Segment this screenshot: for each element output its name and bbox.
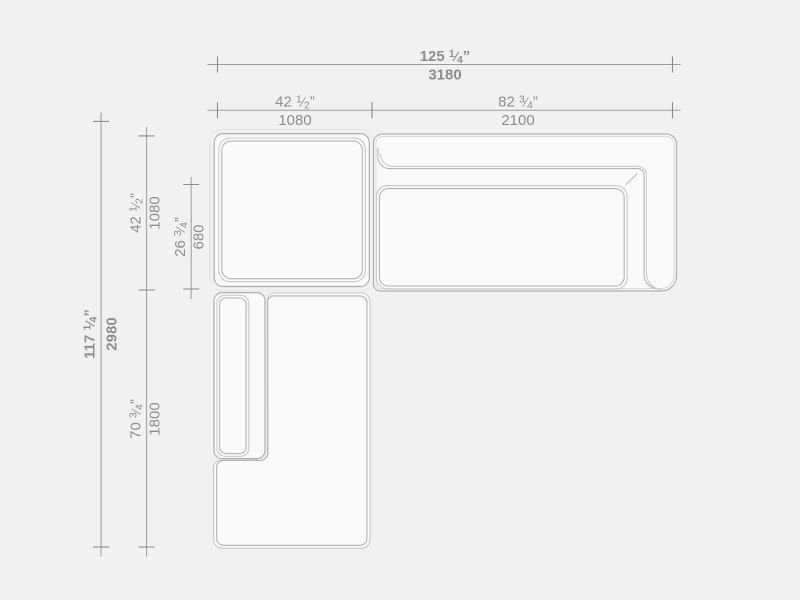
svg-text:2100: 2100 [501,112,534,129]
svg-text:117 1⁄4”: 117 1⁄4” [81,309,99,359]
svg-text:125 1⁄4”: 125 1⁄4” [420,48,471,66]
svg-text:3180: 3180 [428,67,461,84]
svg-text:42 1⁄2”: 42 1⁄2” [127,193,145,233]
svg-text:680: 680 [191,224,208,249]
svg-text:1080: 1080 [278,112,311,129]
svg-text:70 3⁄4”: 70 3⁄4” [127,399,145,439]
svg-text:1800: 1800 [147,402,164,435]
svg-text:26 3⁄4”: 26 3⁄4” [172,217,190,257]
svg-text:82 3⁄4”: 82 3⁄4” [498,93,538,111]
svg-text:2980: 2980 [104,317,121,350]
svg-text:1080: 1080 [147,196,164,229]
svg-text:42 1⁄2”: 42 1⁄2” [275,93,315,111]
